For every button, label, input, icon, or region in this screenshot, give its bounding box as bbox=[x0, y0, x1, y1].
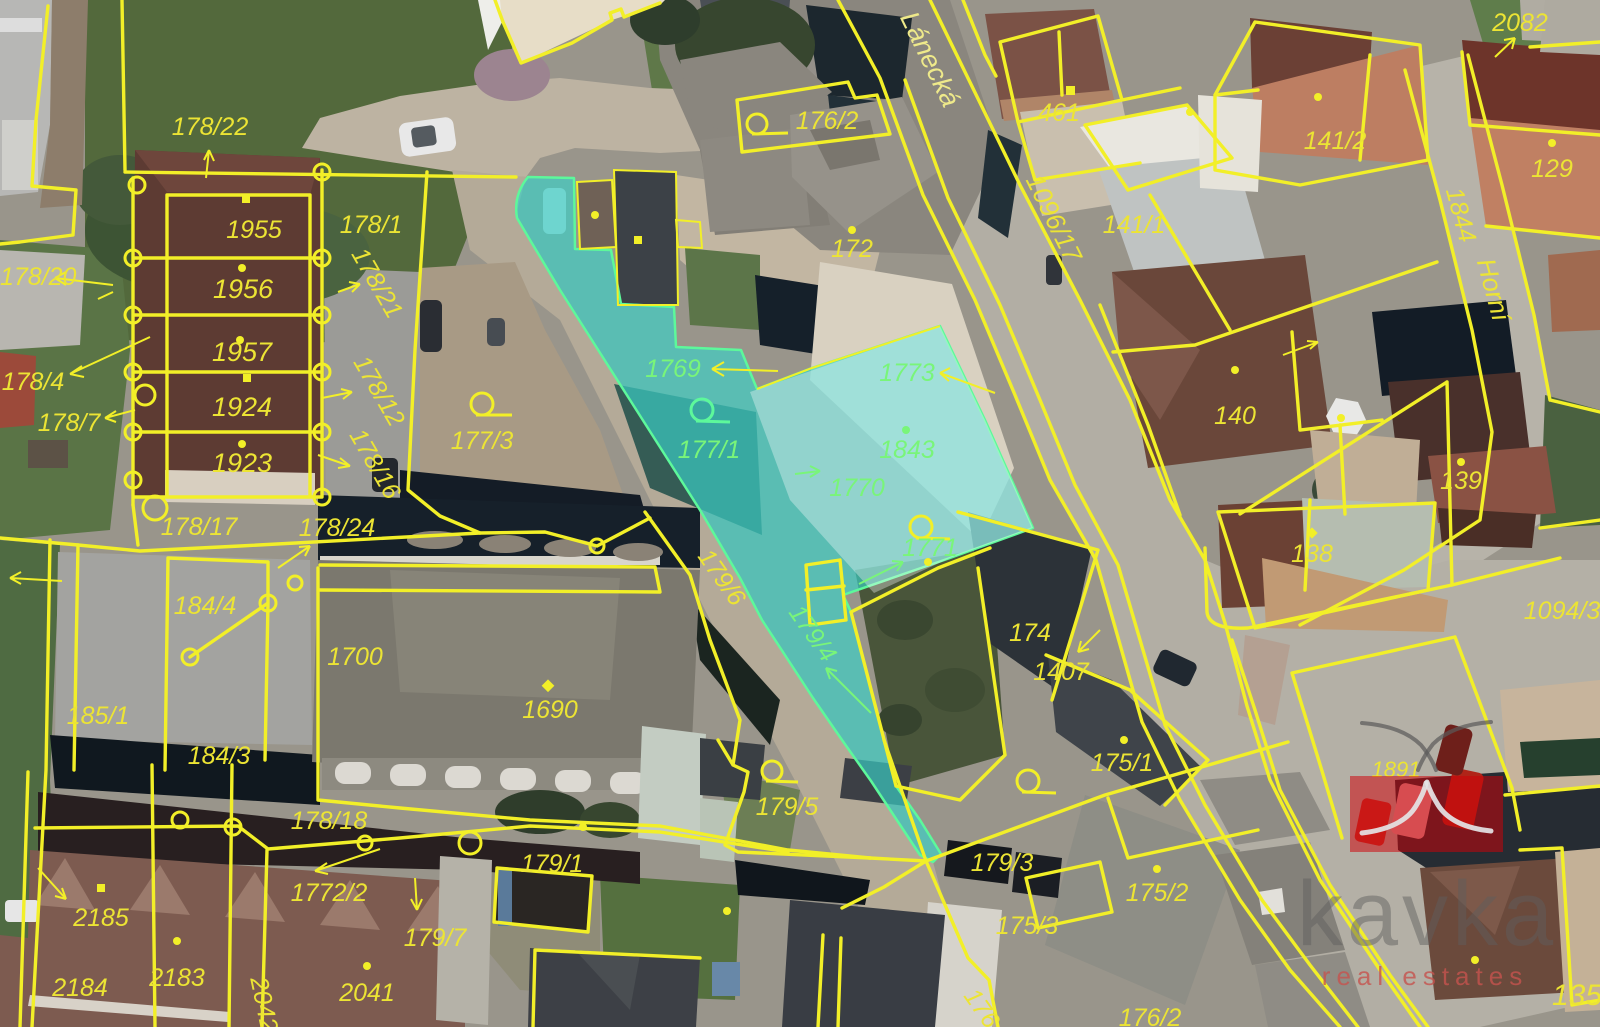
svg-text:2082: 2082 bbox=[1491, 9, 1548, 37]
svg-text:176/2: 176/2 bbox=[796, 107, 859, 135]
svg-text:1690: 1690 bbox=[522, 696, 578, 724]
svg-text:1094/3: 1094/3 bbox=[1524, 597, 1600, 625]
svg-text:129: 129 bbox=[1531, 155, 1573, 183]
svg-text:1773: 1773 bbox=[879, 359, 935, 387]
svg-text:179/7: 179/7 bbox=[404, 924, 468, 952]
svg-text:real estates: real estates bbox=[1322, 961, 1528, 991]
svg-text:1772/2: 1772/2 bbox=[291, 879, 368, 907]
svg-text:184/3: 184/3 bbox=[188, 742, 251, 770]
svg-text:178/17: 178/17 bbox=[161, 513, 239, 541]
svg-text:178/4: 178/4 bbox=[2, 368, 65, 396]
svg-text:461: 461 bbox=[1038, 99, 1080, 127]
svg-text:2184: 2184 bbox=[51, 974, 108, 1002]
svg-text:2185: 2185 bbox=[72, 904, 129, 932]
svg-text:1956: 1956 bbox=[213, 274, 274, 304]
svg-text:178/24: 178/24 bbox=[299, 514, 375, 542]
svg-text:175/1: 175/1 bbox=[1091, 749, 1154, 777]
svg-text:140: 140 bbox=[1214, 402, 1256, 430]
svg-text:1955: 1955 bbox=[226, 216, 282, 244]
svg-text:178/18: 178/18 bbox=[291, 807, 368, 835]
svg-text:141/1: 141/1 bbox=[1103, 211, 1166, 239]
svg-text:1957: 1957 bbox=[212, 337, 273, 367]
svg-text:kavka: kavka bbox=[1297, 863, 1557, 965]
svg-text:175/3: 175/3 bbox=[996, 912, 1059, 940]
svg-text:179/3: 179/3 bbox=[971, 849, 1034, 877]
svg-text:1924: 1924 bbox=[212, 392, 272, 422]
svg-text:1923: 1923 bbox=[212, 448, 272, 478]
svg-text:135: 135 bbox=[1552, 979, 1600, 1012]
svg-text:178/22: 178/22 bbox=[172, 113, 249, 141]
svg-text:174: 174 bbox=[1009, 619, 1051, 647]
svg-text:184/4: 184/4 bbox=[174, 592, 237, 620]
svg-text:141/2: 141/2 bbox=[1304, 127, 1367, 155]
svg-text:179/1: 179/1 bbox=[521, 850, 584, 878]
svg-text:138: 138 bbox=[1291, 540, 1333, 568]
svg-text:178/7: 178/7 bbox=[38, 409, 102, 437]
svg-text:179/5: 179/5 bbox=[756, 793, 819, 821]
svg-text:2041: 2041 bbox=[338, 979, 395, 1007]
svg-text:178/20: 178/20 bbox=[0, 263, 77, 291]
svg-text:1771: 1771 bbox=[902, 534, 958, 562]
svg-text:176/2: 176/2 bbox=[1119, 1004, 1182, 1027]
svg-text:185/1: 185/1 bbox=[67, 702, 130, 730]
svg-text:177/1: 177/1 bbox=[678, 436, 741, 464]
svg-text:1700: 1700 bbox=[327, 643, 383, 671]
svg-text:175/2: 175/2 bbox=[1126, 879, 1189, 907]
svg-text:139: 139 bbox=[1440, 467, 1482, 495]
svg-text:1843: 1843 bbox=[879, 436, 935, 464]
svg-text:172: 172 bbox=[831, 235, 873, 263]
svg-text:1770: 1770 bbox=[829, 474, 885, 502]
svg-text:1407: 1407 bbox=[1033, 658, 1090, 686]
svg-text:177/3: 177/3 bbox=[451, 427, 514, 455]
svg-text:1769: 1769 bbox=[645, 355, 701, 383]
svg-text:2183: 2183 bbox=[148, 964, 205, 992]
svg-text:178/1: 178/1 bbox=[340, 211, 403, 239]
